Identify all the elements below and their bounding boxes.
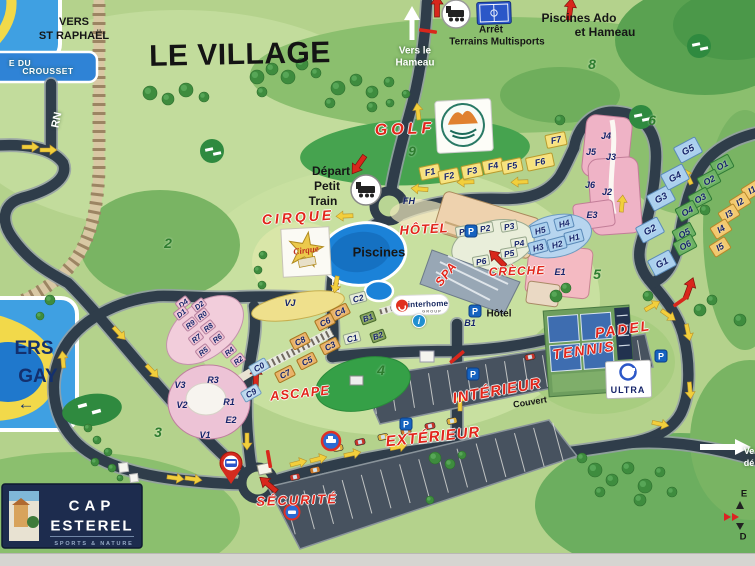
info-icon: i <box>412 314 426 328</box>
tree-highlight <box>608 476 613 481</box>
parking-icon: P <box>467 368 480 381</box>
train-stop-icon <box>442 0 470 28</box>
parking-icon: P <box>655 350 668 363</box>
tree-highlight <box>164 95 169 100</box>
cap-esterel-line2: ESTEREL <box>50 518 133 535</box>
building-e2: E2 <box>225 415 236 425</box>
crosswalk <box>420 351 434 362</box>
building-e1: E1 <box>554 267 565 277</box>
building-j5: J5 <box>586 147 596 157</box>
no-parking-sign-icon <box>322 432 340 450</box>
tree-highlight <box>624 464 629 469</box>
parking-icon: P <box>465 225 478 238</box>
blue-sign-line2: CROUSSET <box>22 66 73 76</box>
sign-vers-st-raphael-line2: ST RAPHAËL <box>39 30 109 42</box>
parking-icon: P <box>469 305 482 318</box>
label-et-hameau: et Hameau <box>575 25 636 39</box>
tree-highlight <box>644 292 649 297</box>
zone-number-8: 8 <box>588 56 596 72</box>
tree-highlight <box>446 460 451 465</box>
tree-highlight <box>708 296 713 301</box>
tree-highlight <box>368 103 373 108</box>
tree-highlight <box>701 206 706 211</box>
tree-highlight <box>37 313 41 317</box>
poi-label-hôtel: HÔTEL <box>399 220 449 238</box>
building-vj: VJ <box>284 298 295 308</box>
zone-number-9: 9 <box>408 143 416 159</box>
label-train: Train <box>309 194 338 208</box>
tree-highlight <box>636 496 641 501</box>
golf-logo <box>435 99 494 154</box>
edge-fragment-top: E <box>741 489 747 500</box>
poi-label-sécurité: SÉCURITÉ <box>256 491 338 509</box>
tree-highlight <box>118 476 121 479</box>
building-fh: FH <box>403 196 415 206</box>
petit-train-icon <box>351 175 381 205</box>
label-piscines: Piscines <box>353 245 406 260</box>
tree-highlight <box>352 76 357 81</box>
tree-highlight <box>562 284 567 289</box>
edge-fragment-bottom: D <box>740 532 747 543</box>
photo-edge <box>0 553 755 566</box>
tree-highlight <box>255 267 259 271</box>
agay-sign-line2: GAY <box>18 366 57 388</box>
tree-highlight <box>94 437 98 441</box>
resort-map: LE VILLAGE VERS ST RAPHAËL E DU CROUSSET… <box>0 0 755 566</box>
map-graphics <box>0 0 755 566</box>
building-r3: R3 <box>207 375 219 385</box>
label-dé: dé <box>744 458 755 468</box>
tree-highlight <box>260 252 264 256</box>
tree-highlight <box>668 488 673 493</box>
tree-highlight <box>459 452 463 456</box>
tree-highlight <box>259 282 263 286</box>
tree-highlight <box>252 72 258 78</box>
building-j6: J6 <box>585 180 595 190</box>
zone-number-6: 6 <box>648 112 656 128</box>
label-vers-le: Vers le <box>399 46 431 57</box>
label-hameau: Hameau <box>396 58 435 69</box>
building-v3: V3 <box>174 380 185 390</box>
tree-highlight <box>85 425 89 429</box>
tree-highlight <box>656 468 661 473</box>
lawn-pavilion <box>350 376 363 385</box>
building-j2: J2 <box>602 187 612 197</box>
agay-sign-arrow: ← <box>18 394 35 414</box>
tree-highlight <box>578 454 583 459</box>
tree-highlight <box>200 93 205 98</box>
tree-highlight <box>556 116 561 121</box>
poi-label-crèche: CRÈCHE <box>488 263 545 279</box>
building-j3: J3 <box>606 152 616 162</box>
cap-esterel-line1: CAP <box>69 498 116 515</box>
label-arrêt: Arrêt <box>479 25 503 36</box>
agay-sign-line1: ERS <box>14 338 53 360</box>
zone-number-3: 3 <box>154 424 162 440</box>
label-départ: Départ <box>312 164 350 178</box>
tree-highlight <box>92 459 96 463</box>
label-hôtel: Hôtel <box>487 309 512 320</box>
tree-highlight <box>326 99 331 104</box>
tree-highlight <box>596 488 601 493</box>
zone-number-4: 4 <box>377 362 385 378</box>
multisport-court-icon <box>477 1 512 24</box>
tree-highlight <box>640 481 646 487</box>
label-terrains-multisports: Terrains Multisports <box>449 37 544 48</box>
poi-label-golf: GOLF <box>374 120 435 140</box>
building-j4: J4 <box>601 131 611 141</box>
building-b1: B1 <box>464 318 476 328</box>
tree-highlight <box>145 88 151 94</box>
tree-highlight <box>552 292 557 297</box>
tree-highlight <box>427 497 431 501</box>
label-petit: Petit <box>314 179 340 193</box>
cap-esterel-tagline: SPORTS & NATURE <box>54 541 133 547</box>
zone-number-5: 5 <box>593 266 601 282</box>
small-pool <box>365 281 393 301</box>
tree-highlight <box>283 72 289 78</box>
tree-highlight <box>696 306 701 311</box>
tree-highlight <box>46 296 51 301</box>
tree-highlight <box>590 465 596 471</box>
building-v2: V2 <box>176 400 187 410</box>
sign-vers-st-raphael-line1: VERS <box>59 16 89 28</box>
cap-esterel-logo <box>2 484 142 548</box>
tree-highlight <box>105 449 109 453</box>
interhome-logo-sub: GROUP <box>422 309 442 314</box>
parking-icon: P <box>400 418 413 431</box>
tree-highlight <box>181 85 187 91</box>
tree-highlight <box>368 88 373 93</box>
label-ve: Ve <box>744 446 755 456</box>
central-plaza <box>186 383 226 415</box>
building-r1: R1 <box>223 397 235 407</box>
tree-highlight <box>109 465 113 469</box>
tree-highlight <box>736 316 741 321</box>
tree-highlight <box>387 100 391 104</box>
tree-highlight <box>385 78 390 83</box>
tree-highlight <box>431 454 436 459</box>
tree-highlight <box>258 88 263 93</box>
ultra-logo-text: ULTRA <box>611 385 646 395</box>
zone-number-2: 2 <box>164 235 172 251</box>
building-e3: E3 <box>586 210 597 220</box>
label-piscines-ado: Piscines Ado <box>542 11 617 25</box>
map-title: LE VILLAGE <box>149 36 331 74</box>
tree-highlight <box>333 83 339 89</box>
building-v1: V1 <box>199 430 210 440</box>
tree-highlight <box>403 91 407 95</box>
